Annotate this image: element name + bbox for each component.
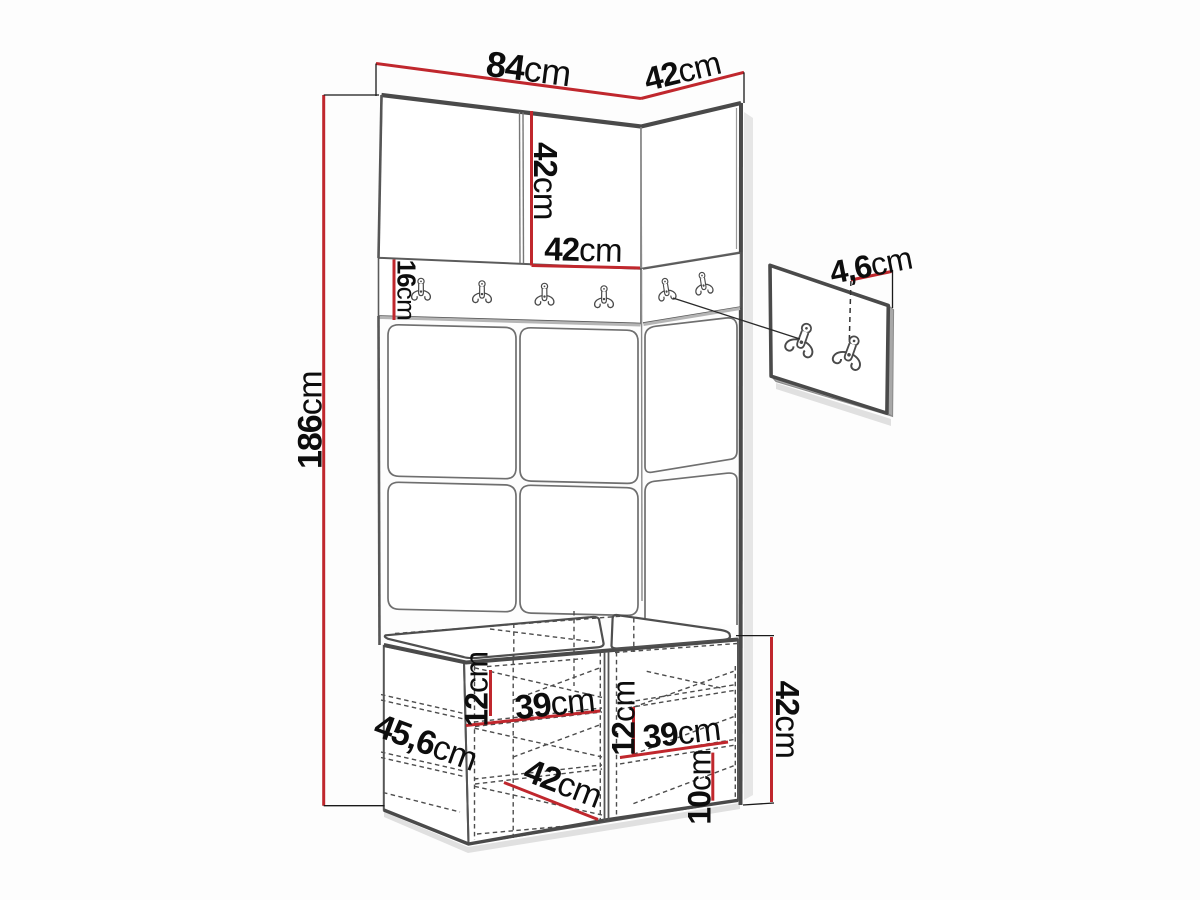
svg-text:42cm: 42cm [769, 681, 806, 759]
svg-text:10cm: 10cm [682, 749, 718, 824]
svg-text:84cm: 84cm [484, 43, 574, 94]
svg-text:42cm: 42cm [544, 230, 623, 269]
svg-text:186cm: 186cm [292, 371, 330, 469]
svg-text:42cm: 42cm [527, 142, 564, 220]
svg-text:16cm: 16cm [392, 260, 422, 321]
svg-text:12cm: 12cm [459, 651, 495, 726]
svg-text:42cm: 42cm [640, 44, 724, 98]
svg-text:4,6cm: 4,6cm [827, 240, 915, 291]
svg-text:12cm: 12cm [606, 680, 642, 755]
